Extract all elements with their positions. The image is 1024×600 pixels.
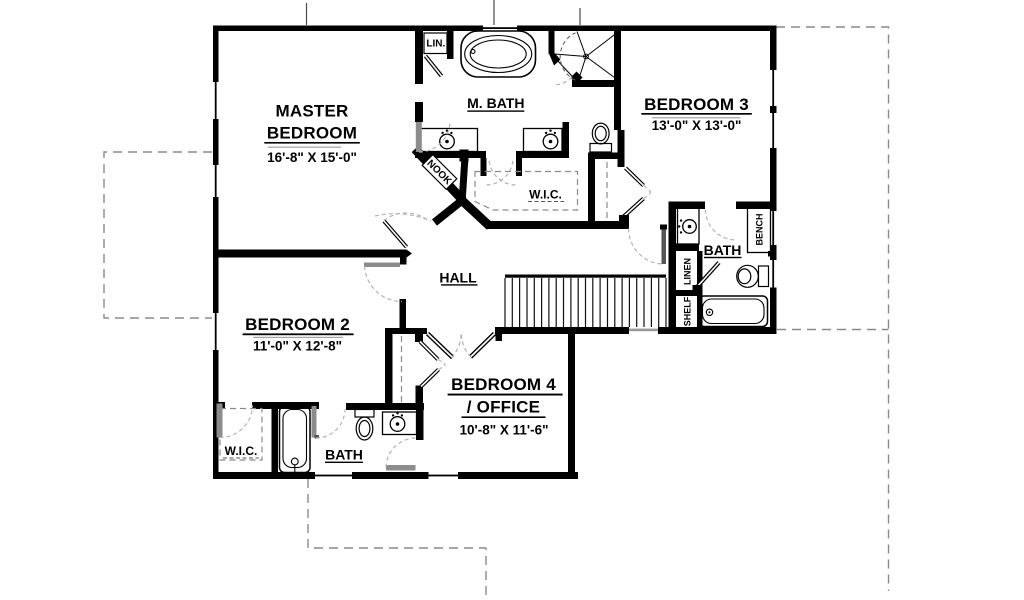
svg-text:HALL: HALL [439, 270, 477, 286]
svg-text:BENCH: BENCH [755, 213, 765, 245]
svg-text:W.I.C.: W.I.C. [529, 188, 562, 202]
svg-text:BEDROOM 2: BEDROOM 2 [245, 315, 350, 334]
svg-text:16'-8" X 15'-0": 16'-8" X 15'-0" [267, 150, 357, 165]
svg-text:SHELF: SHELF [683, 296, 693, 326]
svg-text:/ OFFICE: / OFFICE [467, 398, 540, 417]
svg-text:11'-0" X 12'-8": 11'-0" X 12'-8" [253, 339, 342, 354]
svg-text:M. BATH: M. BATH [467, 95, 524, 111]
svg-text:LIN.: LIN. [426, 39, 445, 50]
svg-text:BEDROOM 3: BEDROOM 3 [644, 95, 749, 114]
svg-text:BATH: BATH [325, 447, 363, 463]
svg-text:MASTER: MASTER [276, 102, 349, 121]
svg-text:BEDROOM: BEDROOM [267, 124, 357, 143]
svg-text:BATH: BATH [704, 242, 742, 258]
svg-text:W.I.C.: W.I.C. [225, 444, 258, 458]
svg-text:10'-8" X 11'-6": 10'-8" X 11'-6" [459, 423, 548, 438]
svg-text:LINEN: LINEN [683, 258, 693, 285]
svg-text:13'-0" X 13'-0": 13'-0" X 13'-0" [652, 118, 742, 133]
svg-text:BEDROOM 4: BEDROOM 4 [451, 375, 556, 394]
